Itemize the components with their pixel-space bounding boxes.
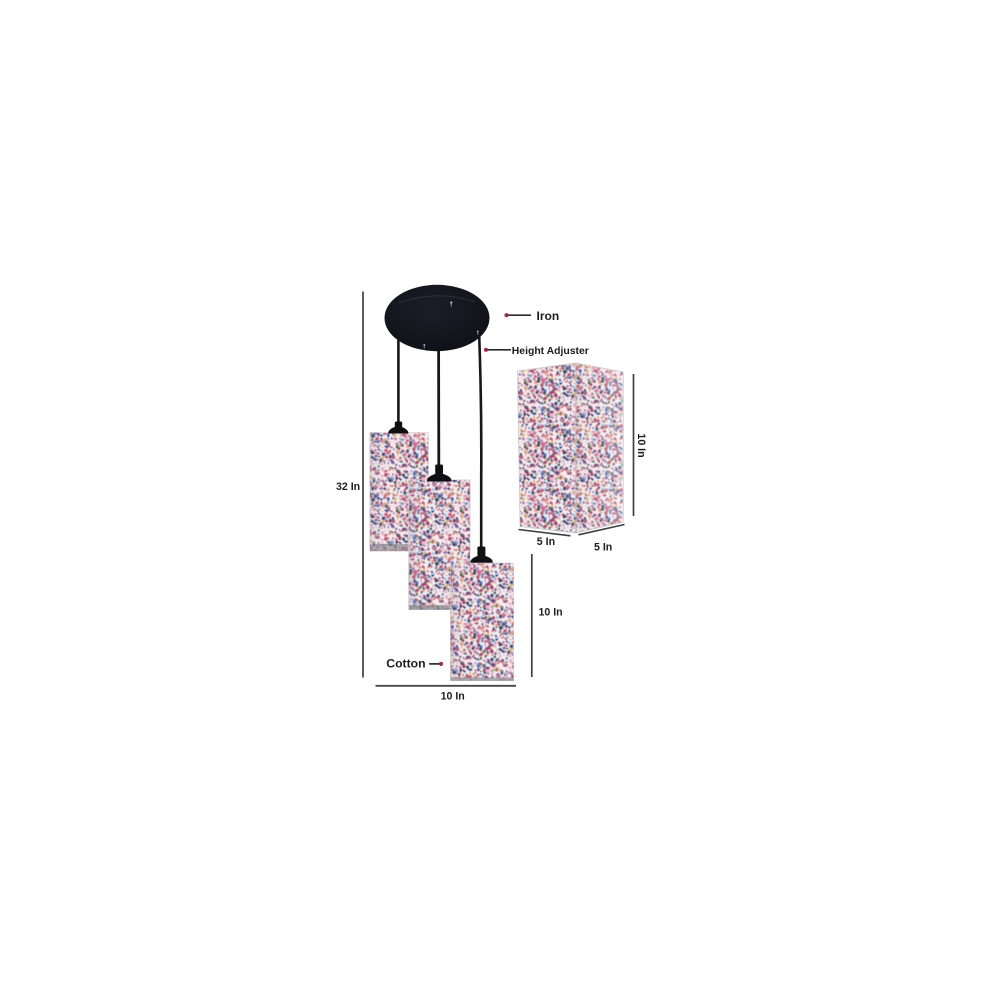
svg-text:Cotton: Cotton [386, 657, 425, 671]
svg-text:10 In: 10 In [539, 607, 563, 619]
svg-text:Iron: Iron [537, 309, 560, 323]
svg-text:10 In: 10 In [441, 691, 465, 703]
svg-text:32 In: 32 In [336, 481, 360, 493]
svg-text:10 In: 10 In [635, 433, 647, 457]
svg-text:Height Adjuster: Height Adjuster [512, 346, 589, 357]
svg-text:5 In: 5 In [537, 536, 555, 548]
svg-text:5 In: 5 In [594, 542, 612, 554]
